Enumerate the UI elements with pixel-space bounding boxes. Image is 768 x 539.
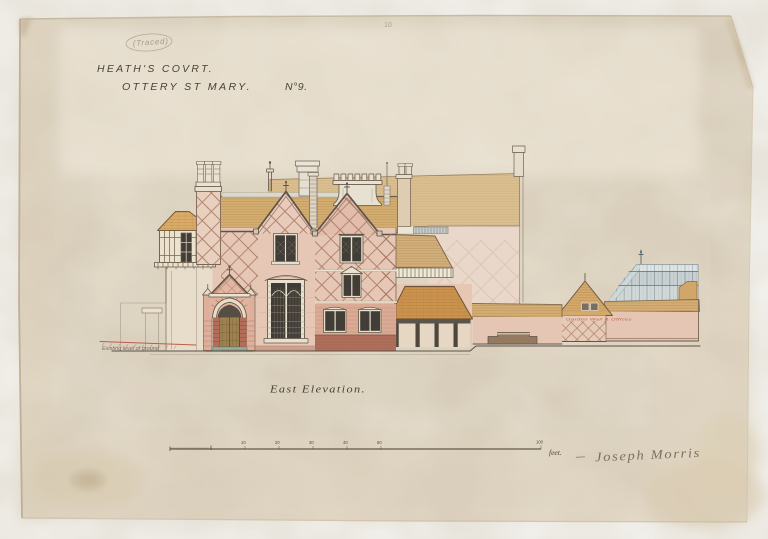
svg-text:10: 10	[241, 440, 246, 445]
svg-text:OTTERY S​T MARY.: OTTERY S​T MARY.	[122, 82, 252, 93]
svg-text:feet.: feet.	[549, 448, 562, 457]
svg-text:100: 100	[536, 440, 544, 445]
svg-text:20: 20	[275, 440, 280, 445]
svg-text:HEATH'S COVRT.: HEATH'S COVRT.	[97, 64, 214, 75]
svg-text:East Elevation.: East Elevation.	[269, 385, 366, 396]
svg-text:10: 10	[384, 22, 392, 29]
svg-text:40: 40	[343, 440, 348, 445]
svg-text:50: 50	[377, 440, 382, 445]
svg-text:30: 30	[309, 440, 314, 445]
svg-text:N°9.: N°9.	[285, 81, 308, 93]
